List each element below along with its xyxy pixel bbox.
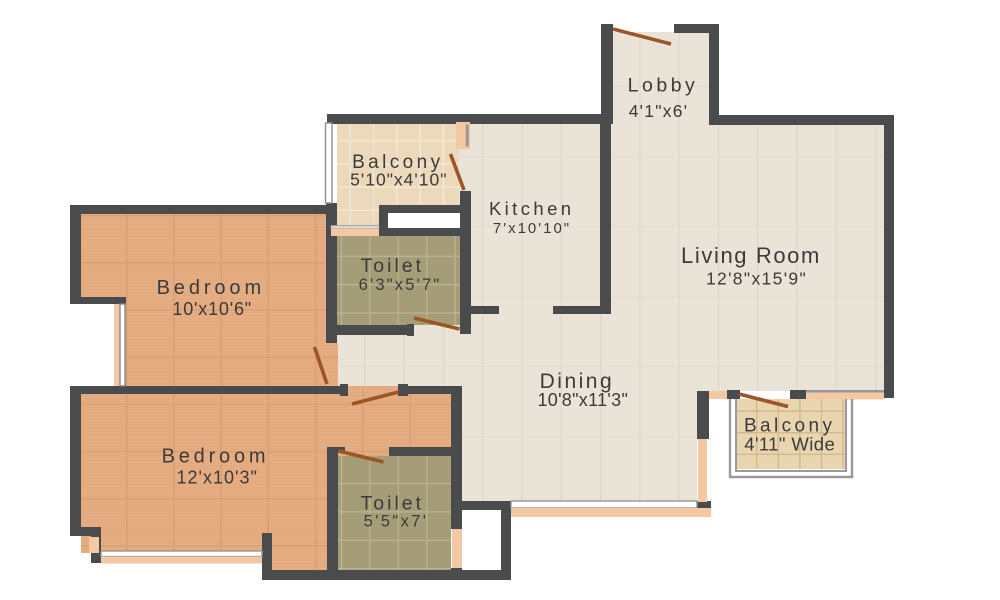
svg-text:10'8"x11'3": 10'8"x11'3"	[537, 390, 628, 410]
svg-text:6'3"x5'7": 6'3"x5'7"	[359, 276, 442, 294]
svg-text:Living Room: Living Room	[681, 243, 821, 268]
svg-text:7'x10'10": 7'x10'10"	[493, 220, 571, 237]
svg-text:Toilet: Toilet	[361, 493, 425, 515]
svg-text:Toilet: Toilet	[361, 255, 425, 277]
svg-text:5'10"x4'10": 5'10"x4'10"	[350, 169, 447, 189]
svg-text:4'11" Wide: 4'11" Wide	[744, 434, 835, 455]
svg-text:12'8"x15'9": 12'8"x15'9"	[706, 269, 807, 289]
svg-text:Kitchen: Kitchen	[489, 198, 575, 219]
svg-text:Bedroom: Bedroom	[162, 445, 270, 467]
svg-text:12'x10'3": 12'x10'3"	[177, 467, 258, 487]
svg-text:Bedroom: Bedroom	[157, 277, 265, 299]
svg-text:5'5"x7': 5'5"x7'	[364, 513, 429, 531]
svg-text:10'x10'6": 10'x10'6"	[172, 299, 252, 319]
svg-text:4'1"x6': 4'1"x6'	[629, 101, 689, 121]
svg-text:Lobby: Lobby	[628, 75, 699, 97]
